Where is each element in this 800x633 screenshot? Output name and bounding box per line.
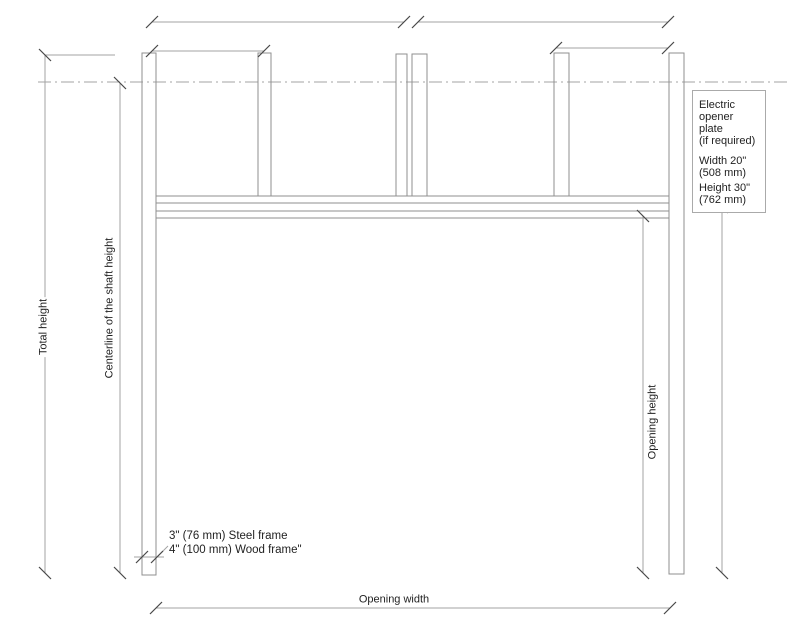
total-height-label: Total height [38,297,51,357]
opener-note-line: opener plate [699,111,760,135]
bracket-post-2 [258,53,271,196]
drawing-lines [0,0,800,633]
opener-note-line: Electric [699,99,760,111]
dimension-lines [45,22,722,608]
opener-note-line: (if required) [699,135,760,147]
right-jamb-post [669,53,684,574]
opening-height-label: Opening height [647,383,660,462]
bracket-post-3 [396,54,407,196]
left-jamb-post [142,53,156,575]
frame-note-line-1: 3" (76 mm) Steel frame [169,529,302,543]
technical-drawing: Total height Centerline of the shaft hei… [0,0,800,633]
centerline-shaft-height-label: Centerline of the shaft height [104,236,117,381]
bracket-post-4 [412,54,427,196]
opener-note-line: Width 20" [699,155,760,167]
opener-note-line: (762 mm) [699,194,760,206]
header-beam [156,196,669,203]
frame-structure [142,53,684,575]
opener-plate-note-box: Electric opener plate (if required) Widt… [692,90,766,213]
opening-width-label: Opening width [357,594,431,607]
frame-note-line-2: 4" (100 mm) Wood frame" [169,543,302,557]
opener-note-line: (508 mm) [699,167,760,179]
opening-top-band [156,211,669,218]
bracket-post-5 [554,53,569,196]
opener-note-line: Height 30" [699,182,760,194]
frame-material-note: 3" (76 mm) Steel frame 4" (100 mm) Wood … [169,529,302,557]
